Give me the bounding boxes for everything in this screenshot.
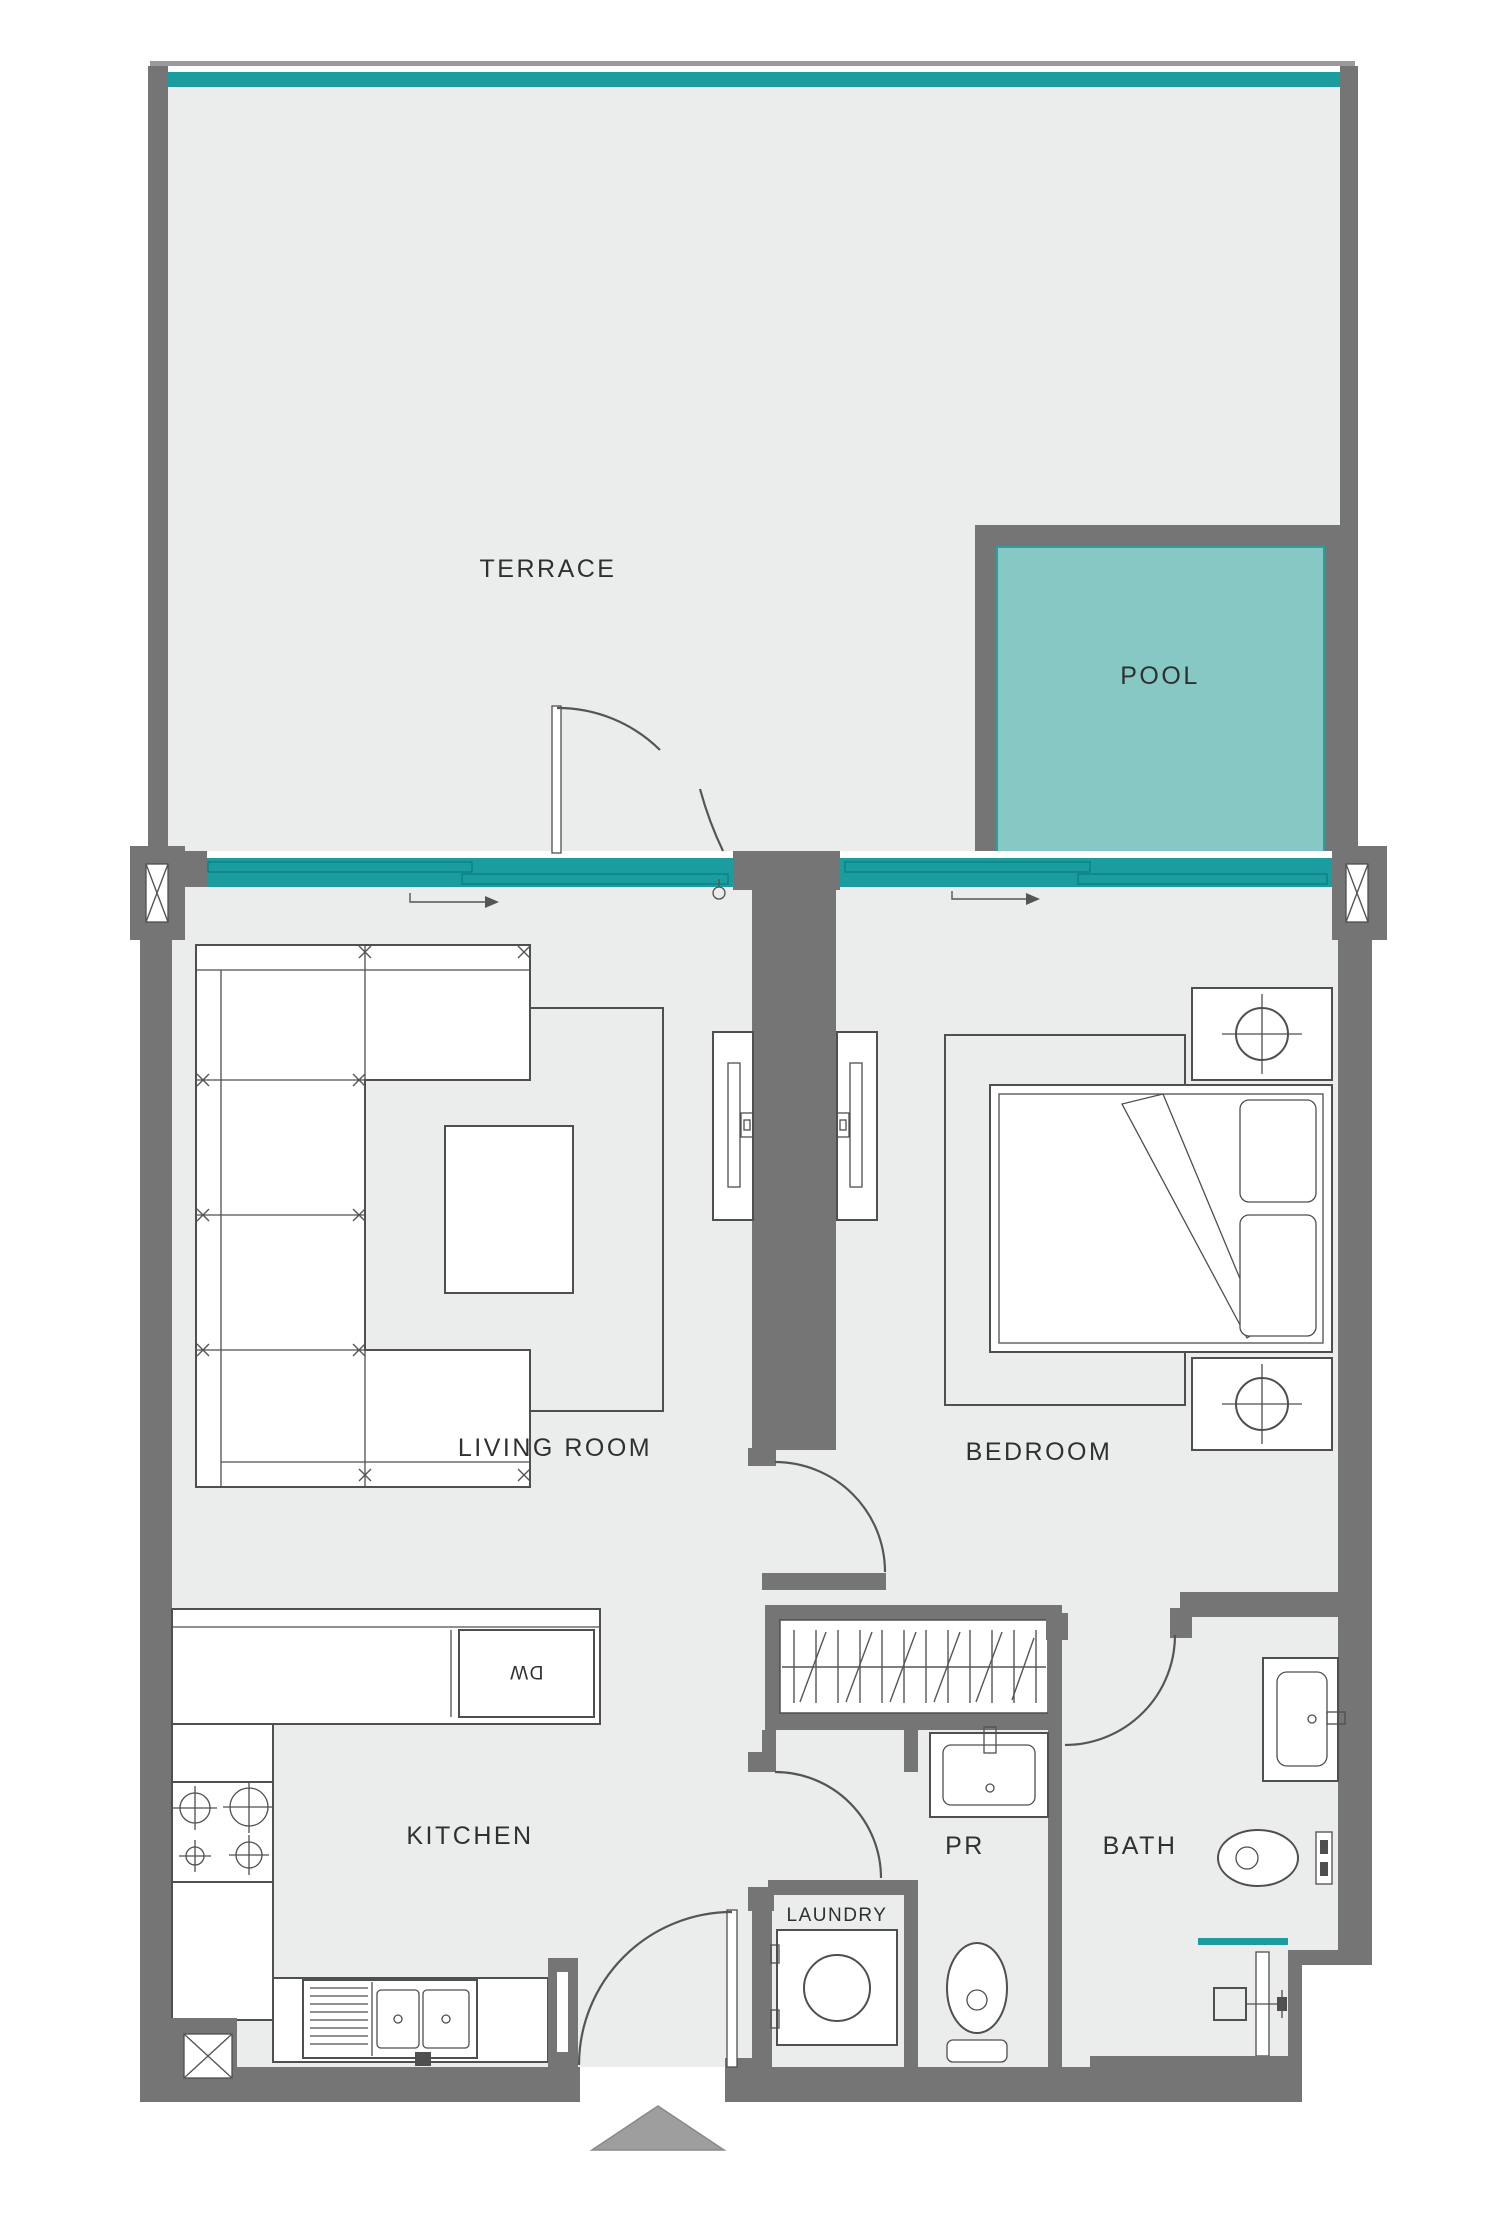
pillow	[1240, 1100, 1316, 1202]
central-wall	[752, 887, 836, 1450]
pillow	[1240, 1215, 1316, 1336]
terrace-edge-line	[150, 61, 1355, 66]
pr-bath-divider-wall	[1048, 1617, 1062, 2098]
terrace-glass-rail	[160, 72, 1345, 87]
bath-step-wall-horizontal	[1288, 1950, 1372, 1965]
bath-step-wall-vertical	[1288, 1950, 1302, 2098]
pool-label: POOL	[1120, 662, 1199, 690]
left-column	[130, 846, 185, 940]
nightstand-bottom	[1192, 1358, 1332, 1450]
terrace-door-leaf	[552, 706, 561, 853]
nightstand-top	[1192, 988, 1332, 1080]
bath-top-wall	[1180, 1592, 1372, 1617]
coffee-table	[445, 1126, 573, 1293]
washing-machine	[771, 1930, 897, 2045]
laundry-left-wall	[752, 1894, 772, 2082]
tv-console-bedroom	[837, 1032, 877, 1220]
bath-label: BATH	[1103, 1832, 1178, 1860]
toilet-tank	[947, 2040, 1007, 2062]
bedroom-door-stop	[748, 1448, 776, 1466]
toilet-tank	[1316, 1832, 1332, 1884]
entrance-pier-slit	[557, 1972, 568, 2052]
kitchen-counter-left	[172, 1724, 273, 2020]
bath-door-stop	[1170, 1608, 1192, 1638]
shower-glass-panel	[1198, 1938, 1288, 1945]
interior-right-wall	[1338, 937, 1372, 1965]
bottom-wall-mid	[725, 2067, 1090, 2102]
bath-bottom-wall	[1090, 2056, 1302, 2102]
pr-door-stop	[748, 1752, 776, 1772]
pr-mid-wall-upper	[904, 1727, 918, 1772]
pr-label: PR	[945, 1832, 985, 1860]
pr-toilet	[947, 1943, 1007, 2062]
kitchen-label: KITCHEN	[406, 1822, 533, 1850]
corner-column	[140, 2018, 237, 2102]
window-center-pier	[733, 851, 840, 890]
pr-sink	[930, 1727, 1048, 1817]
bedroom-label: BEDROOM	[966, 1438, 1113, 1466]
toilet-bowl	[947, 1943, 1007, 2033]
floor-plan-svg: POOL	[0, 0, 1506, 2222]
floor-plan-page: POOL	[0, 0, 1506, 2222]
living-room-label: LIVING ROOM	[458, 1434, 652, 1462]
closet-top-wall	[762, 1573, 886, 1590]
faucet-icon	[415, 2052, 431, 2066]
laundry-right-wall	[904, 1880, 918, 2098]
laundry-top-wall	[768, 1880, 917, 1895]
terrace-label: TERRACE	[480, 555, 617, 583]
bed	[990, 1085, 1332, 1352]
pool-area: POOL	[975, 525, 1358, 878]
dishwasher-label: DW	[509, 1661, 544, 1682]
tv-console-living	[713, 1032, 753, 1220]
bath-vanity	[1263, 1658, 1345, 1781]
bath-door-hinge-post	[1046, 1613, 1068, 1640]
entrance-arrow-icon	[592, 2106, 724, 2150]
exterior-notch	[1302, 1965, 1342, 2098]
entrance-door-leaf	[727, 1910, 737, 2067]
pool-water	[997, 547, 1324, 858]
interior-left-wall	[140, 886, 172, 2102]
laundry-label: LAUNDRY	[787, 1905, 888, 1926]
terrace-left-wall	[148, 66, 168, 853]
right-column	[1332, 846, 1387, 940]
